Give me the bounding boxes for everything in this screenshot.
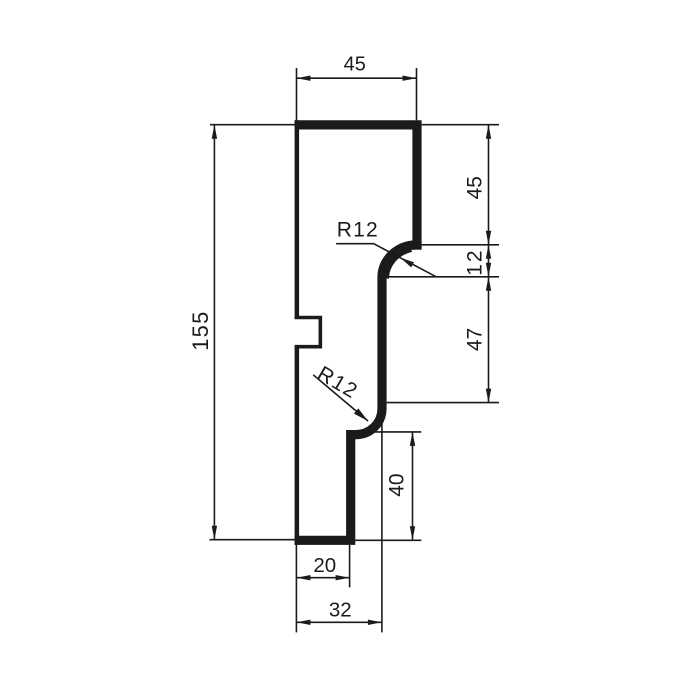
svg-text:47: 47 [464, 328, 487, 351]
svg-text:20: 20 [313, 554, 336, 577]
svg-text:32: 32 [329, 599, 352, 622]
svg-text:45: 45 [464, 176, 487, 199]
svg-text:155: 155 [188, 310, 213, 350]
svg-text:45: 45 [344, 54, 366, 76]
svg-text:12: 12 [464, 248, 487, 275]
svg-text:40: 40 [386, 473, 409, 496]
svg-text:R12: R12 [337, 219, 379, 242]
